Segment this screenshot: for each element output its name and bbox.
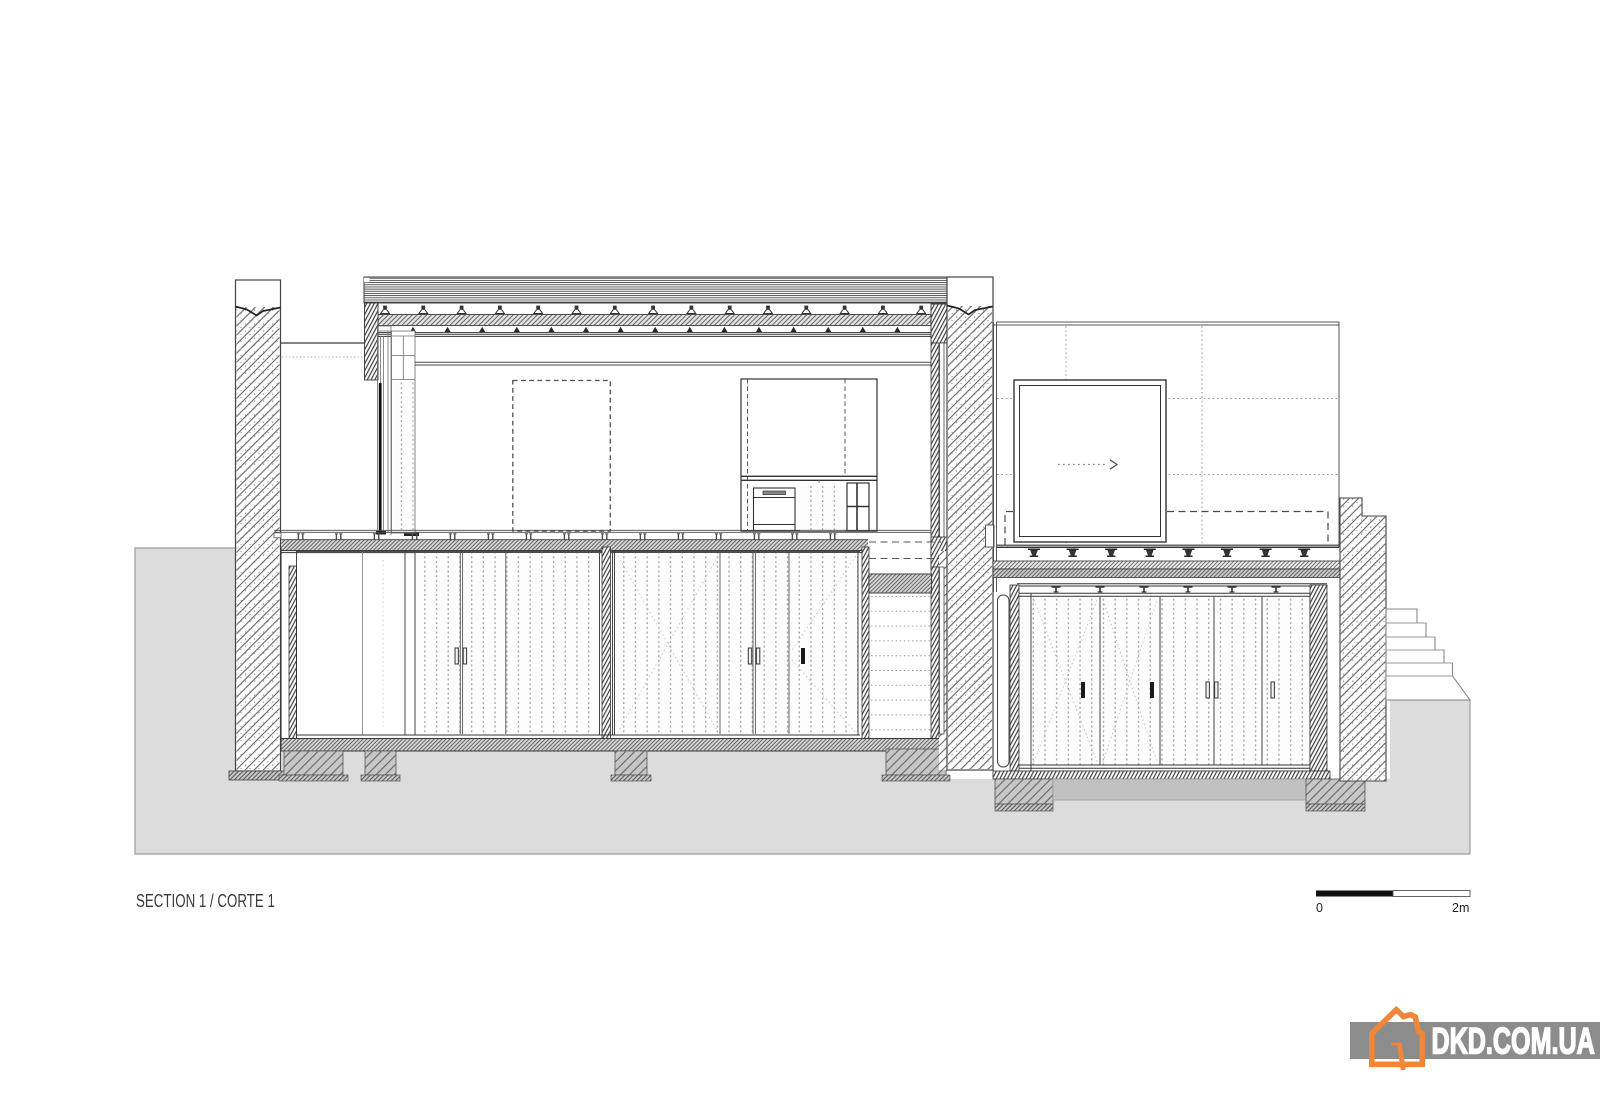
svg-text:DKD.COM.UA: DKD.COM.UA [1432,1019,1595,1061]
